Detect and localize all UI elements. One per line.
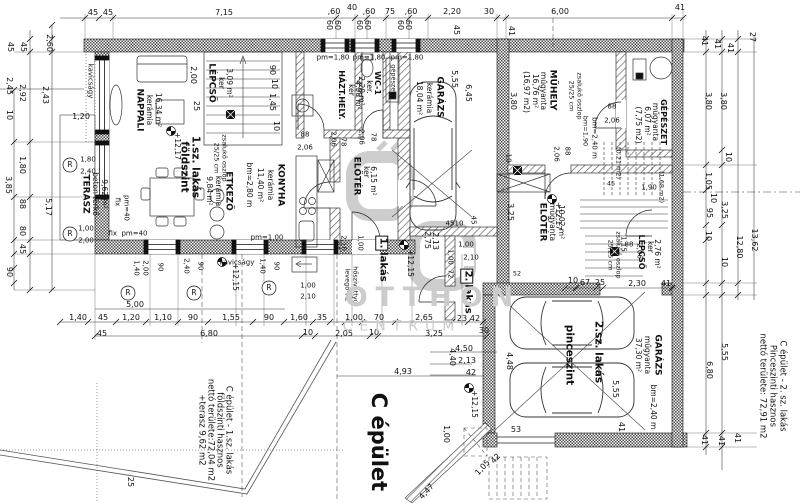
notes-12: zsalukő oszlop	[576, 72, 583, 119]
dims_right-8: 10	[720, 257, 728, 267]
dims_inner-23: 45	[446, 220, 455, 227]
dims_inner-7: 2,06	[297, 144, 313, 151]
rooms-32: 6,07 m²	[643, 106, 651, 135]
markers-2: +12,15	[231, 263, 239, 291]
rooms-12: KONYHA	[275, 164, 284, 207]
dims_inner-39: 45	[607, 181, 615, 188]
dims_bottom-22: 4,93	[394, 368, 412, 376]
dims_inner-2: 90	[268, 65, 276, 75]
rooms-22: GARÁZS	[434, 76, 443, 117]
dims_right-4: 10	[709, 193, 717, 203]
rooms-44: műgyanta	[643, 336, 651, 374]
dims_bottom-34: 67	[580, 279, 590, 287]
dims_top-6: 75	[385, 8, 395, 16]
rooms-43: GARÁZS	[652, 334, 661, 375]
dims_inner-22: 2,13	[431, 232, 439, 250]
notes-8: kavicságy	[220, 259, 255, 266]
dims_inner-6: 88	[301, 131, 310, 138]
dims_top-19: 41	[507, 26, 515, 36]
dims_left-14: 1,20	[72, 113, 90, 121]
notes-13: 25/25 cm	[607, 240, 614, 271]
dims_inner-1: 25	[192, 101, 200, 111]
dims_right-14: 41	[717, 436, 725, 446]
dims_bottom-27: 1,00	[442, 425, 450, 443]
dims_top-8: 2,20	[443, 8, 461, 16]
dims_bottom-30: 4,48	[505, 352, 513, 370]
dims_inner-20: 3,25	[506, 203, 514, 221]
rooms-27: 16,76 m²	[531, 74, 539, 108]
dims_top-17: 60	[404, 20, 412, 30]
window_dims-5: 2,00	[141, 260, 148, 276]
dims_left-4: 90	[5, 267, 13, 277]
dims_inner-32: (0,21 m2)	[615, 147, 622, 179]
markers-1: +12,17	[554, 202, 562, 230]
dims_right-13: 41	[700, 435, 708, 445]
dims_inner-35: 88	[563, 147, 570, 156]
dims_inner-16: 6,45	[464, 84, 472, 102]
annotation-labels: 45457,15,6040,6075,602,20306,00416060606…	[0, 0, 800, 503]
rooms-26: műgyanta	[539, 72, 547, 110]
r_labels-1: R	[67, 230, 72, 238]
dims_right-12: 6,80	[705, 361, 713, 379]
dims_inner-27: 1,00	[446, 249, 453, 265]
dims_inner-37: 1,90	[641, 184, 657, 191]
notes-0: pm=1,80	[317, 54, 350, 61]
dims_right-3: 1,05	[704, 172, 712, 190]
rooms-31: műgyanta	[651, 103, 659, 141]
r_labels-2: R	[125, 289, 130, 297]
dims_top-22: 41	[713, 39, 721, 49]
dims_top-23: 41	[726, 43, 734, 53]
window_dims-3: 2,00	[78, 237, 94, 244]
window_dims-4: 1,40	[132, 260, 139, 276]
dims_inner-26: 2,10	[463, 254, 479, 261]
dims_inner-10: 78	[369, 133, 376, 142]
summaries-7: C épület	[368, 393, 390, 491]
dims_top-9: 30	[484, 8, 494, 16]
dims_right-11: 5,55	[720, 343, 728, 361]
rooms-19: WC-1	[373, 71, 381, 95]
dims_inner-43: 2,10	[300, 293, 316, 300]
dims_left-0: 45	[6, 42, 14, 52]
rooms-40: LÉPCSŐ	[637, 234, 645, 269]
rooms-25: MŰHELY	[547, 70, 556, 111]
dims_bottom-28: 25	[126, 477, 134, 487]
dims_top-5: ,60	[363, 8, 376, 16]
dims_inner-18: 45	[469, 216, 476, 225]
dims_inner-29: 88	[608, 103, 617, 110]
markers-3: +12,15	[406, 249, 414, 277]
dims_bottom-38: 1,05	[474, 459, 492, 478]
window_dims-10: 90	[272, 262, 279, 271]
dims_left-8: 88	[18, 199, 26, 209]
units-4: 1.	[376, 236, 389, 251]
dims_bottom-35: 25	[595, 279, 605, 287]
dims_top-18: 45	[452, 25, 460, 35]
dims_inner-9: 2,06	[357, 129, 364, 145]
dims_bottom-23: 4,50	[455, 345, 473, 353]
notes-14: zsalukő oszlop	[615, 231, 622, 278]
rooms-16: HÁZT.HELY.	[337, 70, 345, 120]
dims_top-4: 40	[347, 4, 357, 12]
summaries-2: nettó területe:72,04 m2	[206, 379, 215, 481]
window_dims-2: 1,00	[78, 225, 94, 232]
dims_bottom-32: 41	[617, 422, 625, 432]
rooms-46: bm=2,40 m	[649, 385, 657, 430]
dims_right-1: 3,80	[719, 92, 727, 110]
dims_bottom-1: 45	[98, 314, 108, 322]
summaries-6: nettó területe: 72,91 m2	[758, 333, 767, 438]
notes-17: gépészet	[390, 64, 397, 94]
rooms-24: 18,04 m²	[415, 81, 423, 115]
rooms-21: 2,20 m²	[357, 76, 365, 105]
rooms-8: 9,84 m²	[205, 176, 213, 205]
rooms-33: (7,75 m2)	[634, 106, 642, 143]
dims_bottom-36: 2,30	[628, 280, 646, 288]
units-0: 1.sz. lakás	[189, 136, 200, 198]
rooms-5: 3,09 m²	[225, 68, 233, 97]
window_dims-7: 2,40	[182, 258, 189, 274]
dims_bottom-0: 1,40	[69, 314, 87, 322]
dims_right-2: 10	[724, 152, 732, 162]
dims_inner-36: 2,06	[552, 146, 559, 162]
dims_inner-13: 85	[332, 242, 339, 251]
rooms-0: NAPPALI	[134, 89, 143, 132]
rooms-34: ELŐTÉR	[351, 157, 360, 196]
dims_bottom-8: 35	[317, 314, 327, 322]
dims_right-9: 12,80	[735, 236, 743, 259]
markers-4: +12,15	[470, 390, 478, 418]
dims_bottom-14: 45	[97, 330, 107, 338]
rooms-13: kerámia	[266, 170, 274, 200]
dims_inner-30: 2,06	[604, 117, 620, 124]
dims_right-5: 95	[705, 208, 713, 218]
rooms-36: 6,15 m²	[369, 166, 377, 195]
r_labels-0: R	[67, 161, 72, 169]
rooms-29: bm=2,40 m	[590, 117, 597, 159]
dims_top-0: 45	[88, 9, 98, 17]
units-5: lakás	[377, 252, 388, 282]
dims_top-21: 41	[700, 36, 708, 46]
notes-5: pm=40	[122, 195, 129, 221]
dims_inner-28: 72	[446, 270, 453, 279]
dims_top-3: ,60	[328, 8, 341, 16]
rooms-23: kerámia	[425, 83, 433, 113]
units-3: pinceszint	[563, 325, 574, 385]
window_dims-9: 1,40	[258, 258, 265, 274]
dims_inner-31: bm=1,90	[582, 116, 589, 146]
dims_right-6: 3,25	[720, 201, 728, 219]
dims_bottom-29: 53	[511, 426, 521, 434]
dims_bottom-2: 1,20	[122, 314, 140, 322]
dims_bottom-33: 10	[568, 277, 578, 285]
dims_bottom-4: 90	[188, 314, 198, 322]
rooms-42: 2,76 m²	[653, 239, 661, 268]
dims_right-10: 13,62	[750, 229, 758, 252]
dims_inner-11: 2,06	[329, 131, 336, 147]
dims_bottom-25: 42	[466, 369, 476, 377]
window_dims-6: 90	[156, 263, 163, 272]
dims_bottom-40: 4,47	[418, 483, 436, 502]
rooms-4: ker	[217, 77, 225, 89]
summaries-4: C épület - 2. sz. lakás	[778, 340, 787, 431]
dims_bottom-26: 4,40	[448, 348, 456, 366]
dims_bottom-20: 30	[479, 327, 489, 335]
summaries-3: +terasz 9,62 m2	[197, 394, 206, 465]
rooms-11: 9,62 m²	[100, 179, 108, 208]
dims_bottom-7: 1,60	[290, 314, 308, 322]
watermark-1: CENTRUM	[343, 320, 462, 335]
rooms-1: kerámia	[145, 95, 153, 125]
dims_inner-0: 2,00	[189, 66, 197, 84]
rooms-45: 37,30 m²	[634, 338, 642, 372]
notes-3: pm=1,00	[251, 234, 284, 241]
notes-4: fix	[113, 198, 120, 207]
dims_inner-40: 52	[513, 271, 521, 278]
dims_left-10: 45	[18, 244, 26, 254]
rooms-14: 11,40 m²	[256, 168, 264, 202]
dims_left-9: 80	[18, 226, 26, 236]
dims_inner-19: 10	[504, 154, 511, 163]
r_labels-4: R	[266, 284, 271, 292]
summaries-0: C épület - 1.sz. lakás	[224, 386, 233, 474]
dims_right-7: 10	[704, 231, 712, 241]
dims_bottom-21: 5,00	[126, 301, 144, 309]
dims_top-2: 7,15	[215, 9, 233, 17]
dims_top-10: 6,00	[551, 8, 569, 16]
dims_inner-14: 1,00	[356, 235, 363, 251]
dims_inner-38: (1,68 m2)	[658, 171, 665, 203]
dims_left-2: 10	[5, 110, 13, 120]
dims_bottom-5: 1,55	[222, 314, 240, 322]
dims_bottom-15: 6,80	[200, 330, 218, 338]
dims_top-20: 27	[748, 32, 756, 42]
rooms-37: ELŐTÉR	[537, 203, 546, 242]
dims_left-7: 1,80	[18, 156, 26, 174]
dims_left-12: 2,43	[41, 86, 49, 104]
notes-2: pm=1,80	[391, 54, 424, 61]
dims_bottom-3: 1,10	[154, 314, 172, 322]
rooms-28: (16,97 m2)	[522, 71, 530, 113]
dims_bottom-37: 41	[661, 280, 671, 288]
dims_inner-4: 1,45	[268, 93, 276, 111]
rooms-9: TERASZ	[80, 174, 89, 213]
window_dims-8: 90	[196, 262, 203, 271]
rooms-3: LÉPCSŐ	[206, 63, 215, 102]
dims_left-3: 3,85	[4, 176, 12, 194]
notes-7: kavicságy	[86, 64, 93, 99]
dims_bottom-13: 42	[470, 315, 480, 323]
dims_bottom-16: 10	[303, 329, 313, 337]
dims_top-15: 60	[363, 20, 371, 30]
dims_bottom-31: 5,55	[611, 380, 619, 398]
dims_top-11: 41	[675, 4, 685, 12]
dims_top-1: 45	[103, 9, 113, 17]
dims_left-1: 2,45	[5, 77, 13, 95]
notes-1: pm=1,80	[353, 54, 386, 61]
summaries-5: Pinceszinti hasznos	[768, 345, 777, 427]
dims_inner-3: 10	[270, 79, 278, 89]
dims_left-6: 2,92	[18, 84, 26, 102]
notes-10: zsalukő oszlop	[221, 134, 228, 181]
dims_inner-15: 5,55	[450, 70, 458, 88]
notes-11: 25/25 cm	[568, 81, 575, 112]
dims_inner-24: 10	[455, 220, 464, 227]
dims_inner-8: 78	[339, 138, 346, 147]
summaries-1: földszinti hasznos	[215, 392, 224, 468]
dims_right-15: 41	[733, 433, 741, 443]
notes-6: fix pm=40	[108, 230, 147, 237]
rooms-2: 16,34 m²	[154, 93, 162, 127]
dims_top-7: ,60	[405, 8, 418, 16]
markers-0: +12,17	[173, 132, 181, 160]
watermark-0: OTTHON	[345, 284, 522, 312]
dims_inner-42: 1,00	[300, 282, 316, 289]
notes-9: 25/25 cm	[213, 143, 220, 174]
rooms-20: ker.	[365, 80, 373, 93]
dims_bottom-6: 90	[264, 314, 274, 322]
dims_top-13: 60	[333, 20, 341, 30]
dims_inner-17: 3,80	[509, 92, 517, 110]
dims_left-5: 45	[19, 42, 27, 52]
dims_bottom-24: 2,13	[458, 357, 476, 365]
dims_inner-5: 10	[272, 121, 280, 131]
dims_inner-25: 1,00	[458, 241, 474, 248]
dims_left-13: 5,17	[44, 198, 52, 216]
window_dims-0: 1,80	[80, 156, 96, 163]
dims_right-0: 3,80	[704, 92, 712, 110]
units-2: 2.sz. lakás	[592, 321, 603, 383]
rooms-30: GÉPÉSZET	[659, 99, 667, 145]
dims_left-11: 2,60	[45, 34, 53, 52]
rooms-15: bm=2,80 m	[245, 163, 253, 208]
floor-plan-page: 45457,15,6040,6075,602,20306,00416060606…	[0, 0, 800, 503]
rooms-10: beton térkő	[91, 172, 99, 216]
r_labels-3: R	[191, 289, 196, 297]
